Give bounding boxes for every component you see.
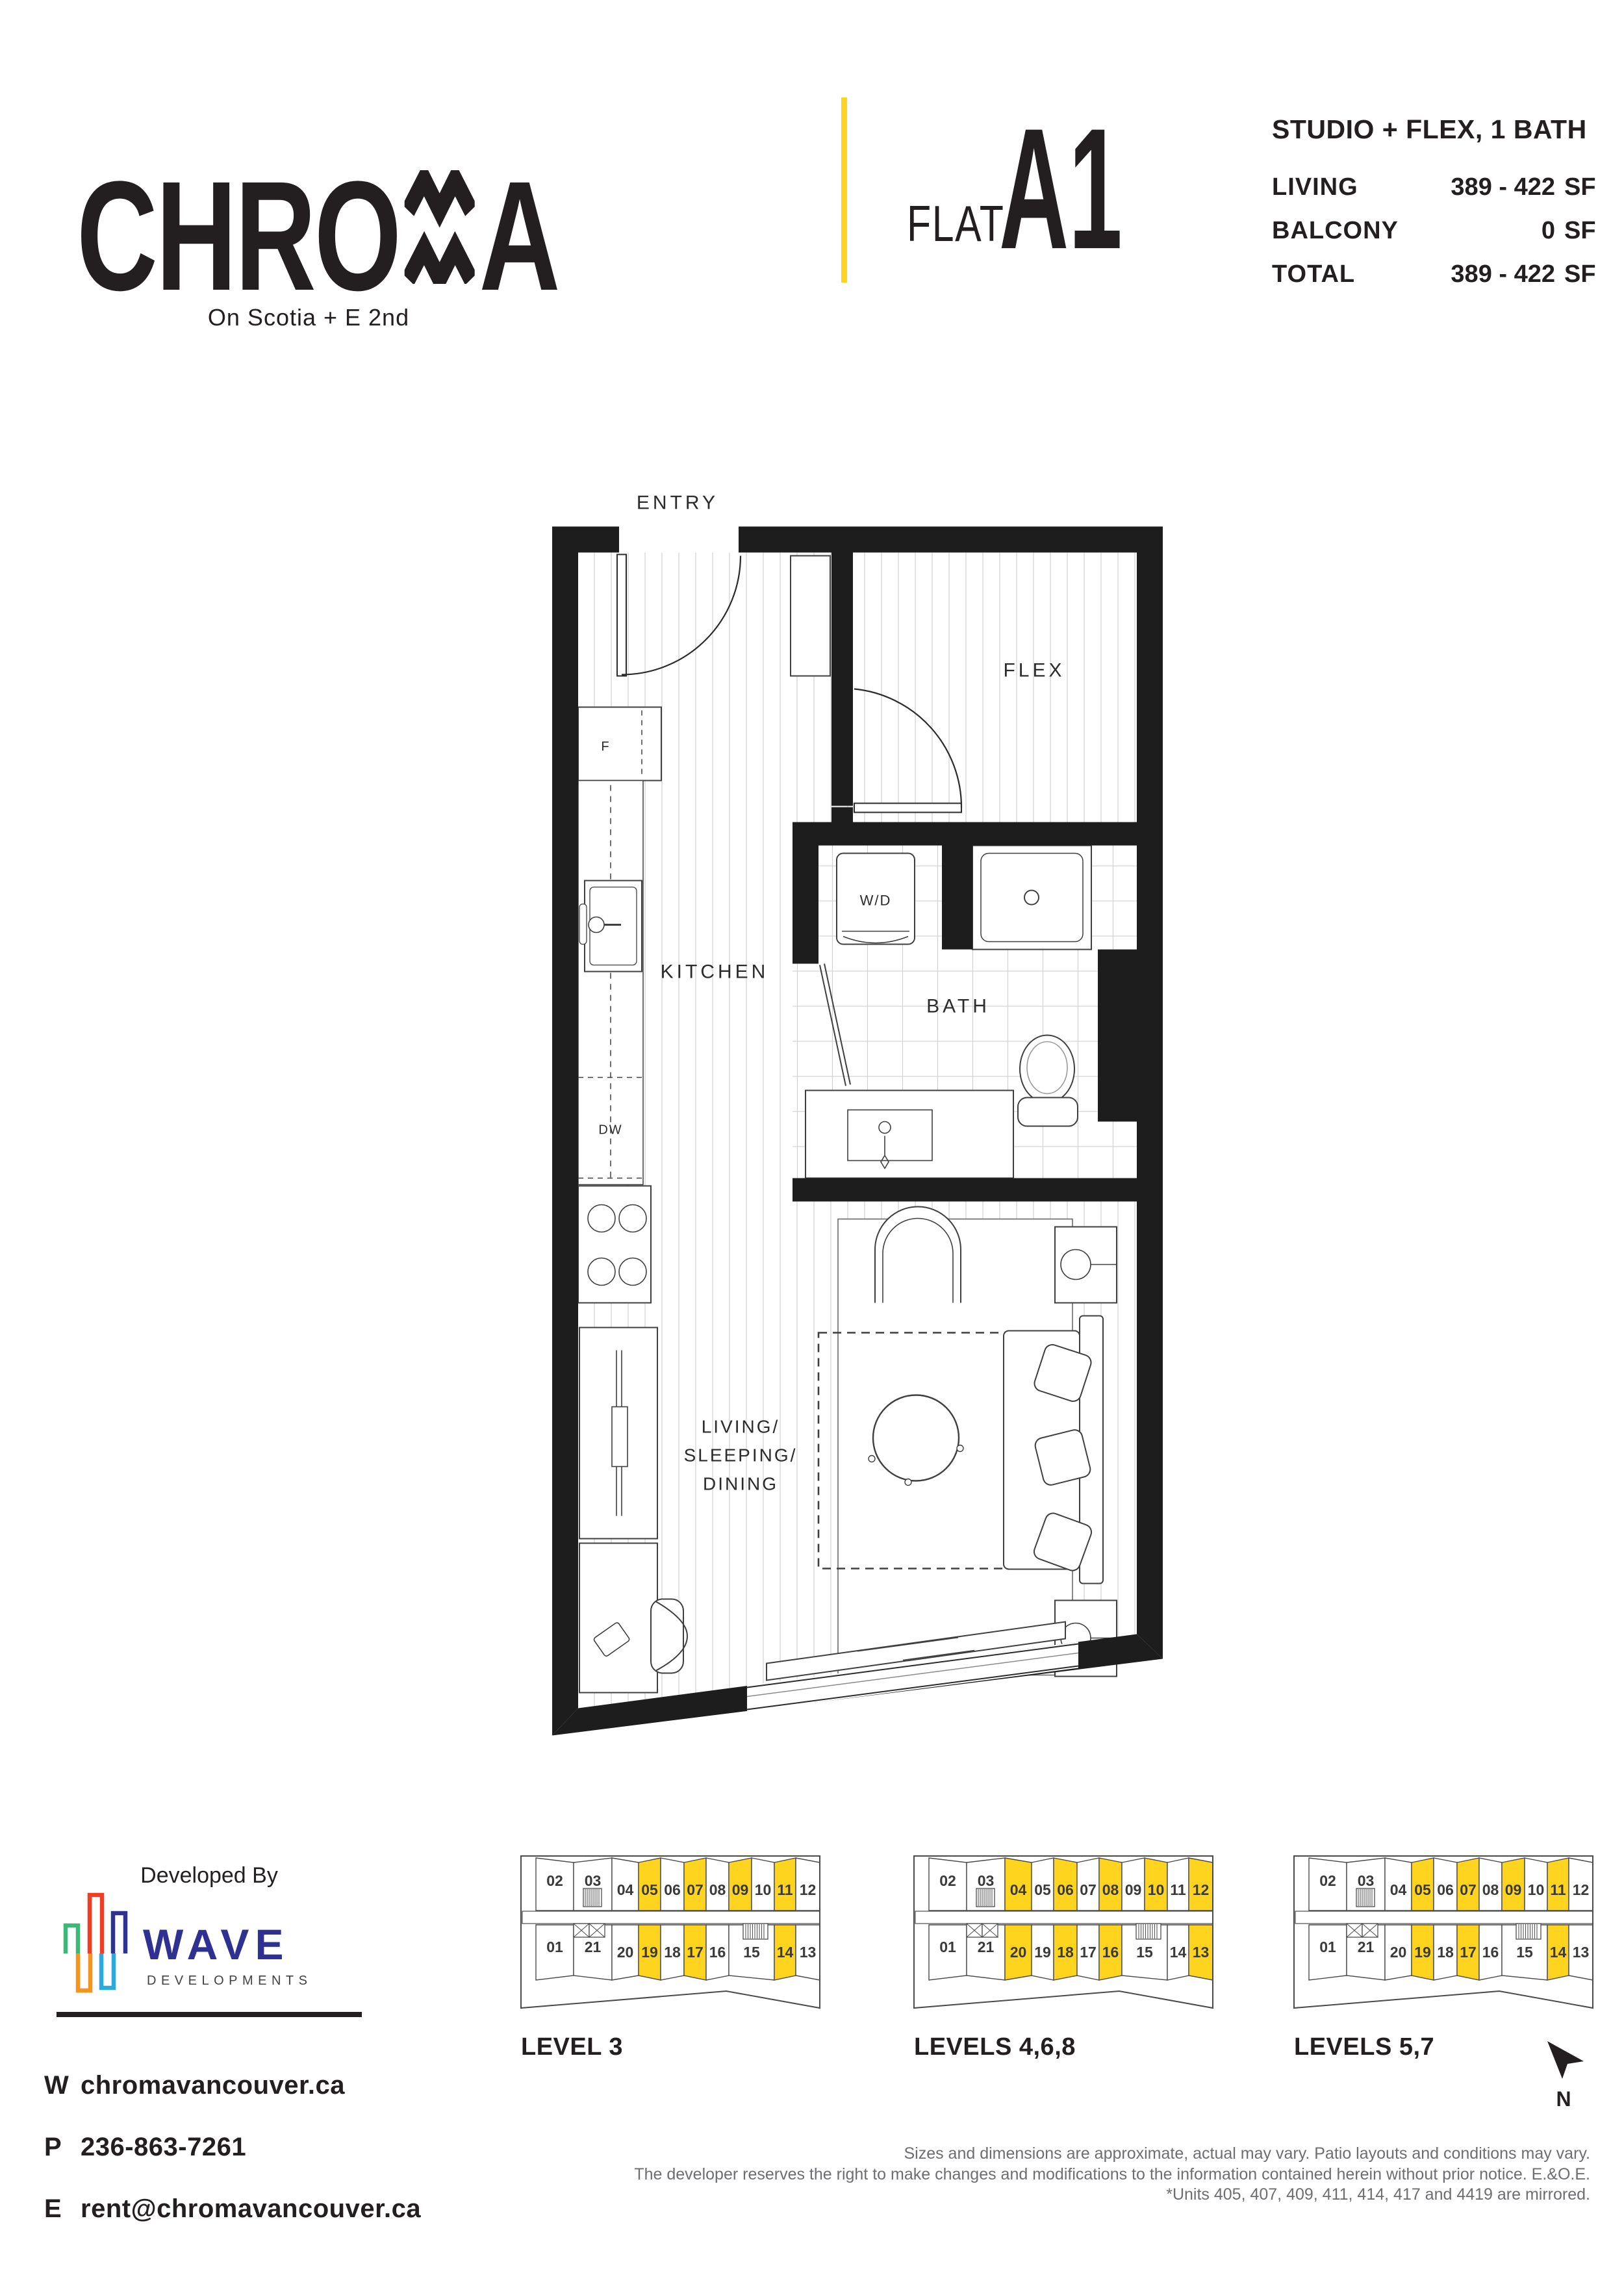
fridge-label: F [601,740,609,754]
svg-text:10: 10 [1528,1881,1545,1898]
faucet-icon [589,917,604,933]
chroma-m-zigzag-icon [404,170,474,284]
svg-text:12: 12 [800,1881,817,1898]
svg-text:06: 06 [1437,1881,1454,1898]
svg-text:07: 07 [687,1881,704,1898]
svg-text:09: 09 [1125,1881,1142,1898]
armchair [875,1207,961,1303]
svg-text:DINING: DINING [703,1474,778,1494]
svg-text:20: 20 [1390,1944,1407,1961]
svg-text:19: 19 [1414,1944,1431,1961]
svg-text:21: 21 [978,1938,995,1955]
svg-text:17: 17 [687,1944,704,1961]
wave-logo-icon [61,1892,129,1996]
svg-text:13: 13 [800,1944,817,1961]
svg-text:04: 04 [617,1881,634,1898]
wave-subtitle: DEVELOPMENTS [147,1974,312,1989]
svg-text:10: 10 [755,1881,772,1898]
level-diagram-label: LEVEL 3 [521,2033,623,2061]
level-diagram-label: LEVELS 5,7 [1294,2033,1434,2061]
floor-plan: ENTRY FLEX KITCHEN BATH LIVING/ SLEEPING… [552,470,1163,1744]
svg-text:03: 03 [1358,1872,1375,1889]
svg-text:03: 03 [978,1872,995,1889]
unit-specs: STUDIO + FLEX, 1 BATH LIVING 389 - 422 S… [1272,114,1593,304]
spec-row-balcony: BALCONY 0 SF [1272,217,1593,245]
svg-text:01: 01 [939,1938,956,1955]
contact-phone: P 236-863-7261 [44,2133,499,2162]
svg-text:05: 05 [641,1881,658,1898]
svg-text:02: 02 [546,1872,563,1889]
round-table [873,1395,959,1481]
svg-text:06: 06 [664,1881,681,1898]
contact-website: W chromavancouver.ca [44,2071,499,2100]
svg-text:SLEEPING/: SLEEPING/ [684,1445,798,1466]
svg-text:03: 03 [585,1872,602,1889]
level-diagram-level3: 0203040506070809101112012120191817161514… [520,1855,822,2011]
svg-text:11: 11 [1170,1881,1186,1898]
svg-text:15: 15 [743,1944,760,1961]
desk [579,1544,657,1693]
svg-text:18: 18 [1437,1944,1454,1961]
website-link[interactable]: chromavancouver.ca [81,2071,499,2100]
entry-closet [791,556,830,676]
north-arrow: N [1536,2033,1595,2118]
chroma-logo: CHRO A [77,158,559,314]
svg-text:16: 16 [1482,1944,1499,1961]
svg-text:10: 10 [1148,1881,1165,1898]
svg-text:01: 01 [1319,1938,1336,1955]
spec-row-total: TOTAL 389 - 422 SF [1272,261,1593,288]
svg-text:16: 16 [1102,1944,1119,1961]
level-diagram-levels57: 0203040506070809101112012120191817161514… [1293,1855,1595,2011]
svg-text:14: 14 [777,1944,794,1961]
chroma-logo-text-left: CHRO [77,158,400,314]
bath-label: BATH [926,996,990,1017]
svg-text:18: 18 [1057,1944,1074,1961]
svg-text:15: 15 [1516,1944,1533,1961]
brand-tagline: On Scotia + E 2nd [78,304,539,331]
wave-name: WAVE [143,1923,289,1966]
svg-text:09: 09 [1505,1881,1522,1898]
divider-rule [57,2012,362,2017]
floor-plan-drawing: ENTRY FLEX KITCHEN BATH LIVING/ SLEEPING… [552,470,1163,1744]
svg-text:17: 17 [1080,1944,1097,1961]
living-furniture [818,1207,1117,1677]
svg-text:LIVING/: LIVING/ [702,1417,780,1437]
spec-row-living: LIVING 389 - 422 SF [1272,173,1593,201]
toilet-tank [1018,1098,1078,1126]
wd-label: W/D [860,893,892,909]
chroma-logo-text-right: A [479,158,559,314]
svg-text:07: 07 [1080,1881,1097,1898]
svg-text:21: 21 [1358,1938,1375,1955]
svg-text:08: 08 [1102,1881,1119,1898]
kitchen-label: KITCHEN [661,961,769,983]
level-diagram-label: LEVELS 4,6,8 [914,2033,1076,2061]
svg-text:11: 11 [1550,1881,1566,1898]
svg-text:12: 12 [1193,1881,1210,1898]
unit-type: STUDIO + FLEX, 1 BATH [1272,114,1593,145]
svg-text:14: 14 [1170,1944,1187,1961]
svg-text:07: 07 [1460,1881,1477,1898]
svg-text:04: 04 [1010,1881,1027,1898]
svg-text:19: 19 [1034,1944,1051,1961]
flex-label: FLEX [1003,660,1065,681]
lamp-icon [1061,1250,1091,1280]
email-link[interactable]: rent@chromavancouver.ca [81,2194,499,2224]
svg-text:17: 17 [1460,1944,1477,1961]
svg-text:18: 18 [664,1944,681,1961]
svg-text:19: 19 [641,1944,658,1961]
svg-text:02: 02 [1319,1872,1336,1889]
svg-text:08: 08 [709,1881,726,1898]
svg-text:02: 02 [939,1872,956,1889]
north-label: N [1556,2087,1571,2111]
svg-text:14: 14 [1550,1944,1567,1961]
svg-text:05: 05 [1034,1881,1051,1898]
svg-text:06: 06 [1057,1881,1074,1898]
svg-text:09: 09 [732,1881,749,1898]
floorplan-sheet: CHRO A On Scotia + E 2nd FLAT A1 STUDIO … [0,0,1624,2275]
svg-text:20: 20 [1010,1944,1027,1961]
svg-text:13: 13 [1193,1944,1210,1961]
svg-text:21: 21 [585,1938,602,1955]
svg-text:15: 15 [1136,1944,1153,1961]
flat-label: FLAT [907,205,1004,242]
svg-text:12: 12 [1573,1881,1590,1898]
svg-text:05: 05 [1414,1881,1431,1898]
svg-text:08: 08 [1482,1881,1499,1898]
svg-text:01: 01 [546,1938,563,1955]
contact-block: W chromavancouver.ca P 236-863-7261 E re… [44,2071,499,2256]
north-arrow-icon [1547,2041,1584,2079]
desk-chair [651,1599,683,1673]
vanity-sink [848,1110,932,1161]
svg-text:13: 13 [1573,1944,1590,1961]
svg-text:20: 20 [617,1944,634,1961]
flat-code: A1 [999,125,1123,254]
stove [578,1186,651,1303]
contact-email: E rent@chromavancouver.ca [44,2194,499,2224]
svg-text:04: 04 [1390,1881,1407,1898]
developed-by-heading: Developed By [57,1863,362,1888]
svg-text:11: 11 [777,1881,793,1898]
yellow-divider [841,97,847,283]
dw-label: DW [598,1123,622,1137]
phone-link[interactable]: 236-863-7261 [81,2133,499,2162]
svg-text:16: 16 [709,1944,726,1961]
disclaimer: Sizes and dimensions are approximate, ac… [551,2144,1590,2205]
fridge [578,707,661,781]
level-diagram-levels468: 0203040506070809101112012120191817161514… [913,1855,1215,2011]
entry-label: ENTRY [637,492,718,514]
